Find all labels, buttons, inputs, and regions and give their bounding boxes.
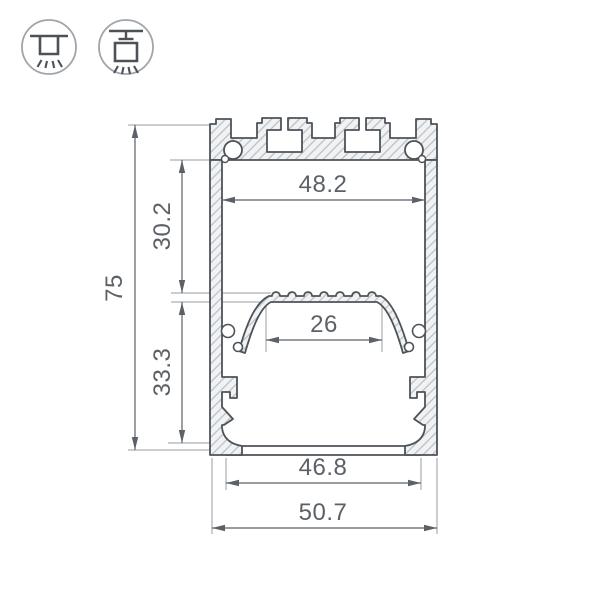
right-wall xyxy=(405,160,437,455)
icon-ring xyxy=(22,20,76,74)
screw-boss-left-lip xyxy=(222,156,229,163)
profile-body xyxy=(210,118,437,455)
shelf-curl-left xyxy=(234,343,243,352)
label-shelf-width: 26 xyxy=(310,311,338,338)
extension-lines xyxy=(128,125,437,534)
label-total-height: 75 xyxy=(101,274,128,302)
screw-boss-right-lip xyxy=(419,156,426,163)
left-wall xyxy=(210,160,242,455)
technical-drawing-page: 75 30.2 33.3 48.2 26 46.8 50.7 xyxy=(0,0,600,600)
dimension-labels: 75 30.2 33.3 48.2 26 46.8 50.7 xyxy=(101,171,347,526)
profile-box xyxy=(40,36,58,54)
pendant-mount-icon xyxy=(99,20,153,74)
label-bottom-inner-width: 46.8 xyxy=(299,454,348,481)
label-total-width: 50.7 xyxy=(299,499,348,526)
wall-knob-right xyxy=(413,325,426,338)
light-rays xyxy=(38,60,63,68)
shelf-curl-right xyxy=(405,343,414,352)
label-top-inner-width: 48.2 xyxy=(299,171,348,198)
label-lower-chamber-height: 33.3 xyxy=(149,348,176,397)
dimension-lines xyxy=(135,125,437,528)
profile-box xyxy=(115,43,137,61)
surface-mount-icon xyxy=(22,20,76,74)
profile-cross-section-drawing: 75 30.2 33.3 48.2 26 46.8 50.7 xyxy=(0,0,600,600)
label-upper-chamber-height: 30.2 xyxy=(149,202,176,251)
icon-ring xyxy=(99,20,153,74)
wall-knob-left xyxy=(222,325,235,338)
top-cap xyxy=(210,118,437,160)
